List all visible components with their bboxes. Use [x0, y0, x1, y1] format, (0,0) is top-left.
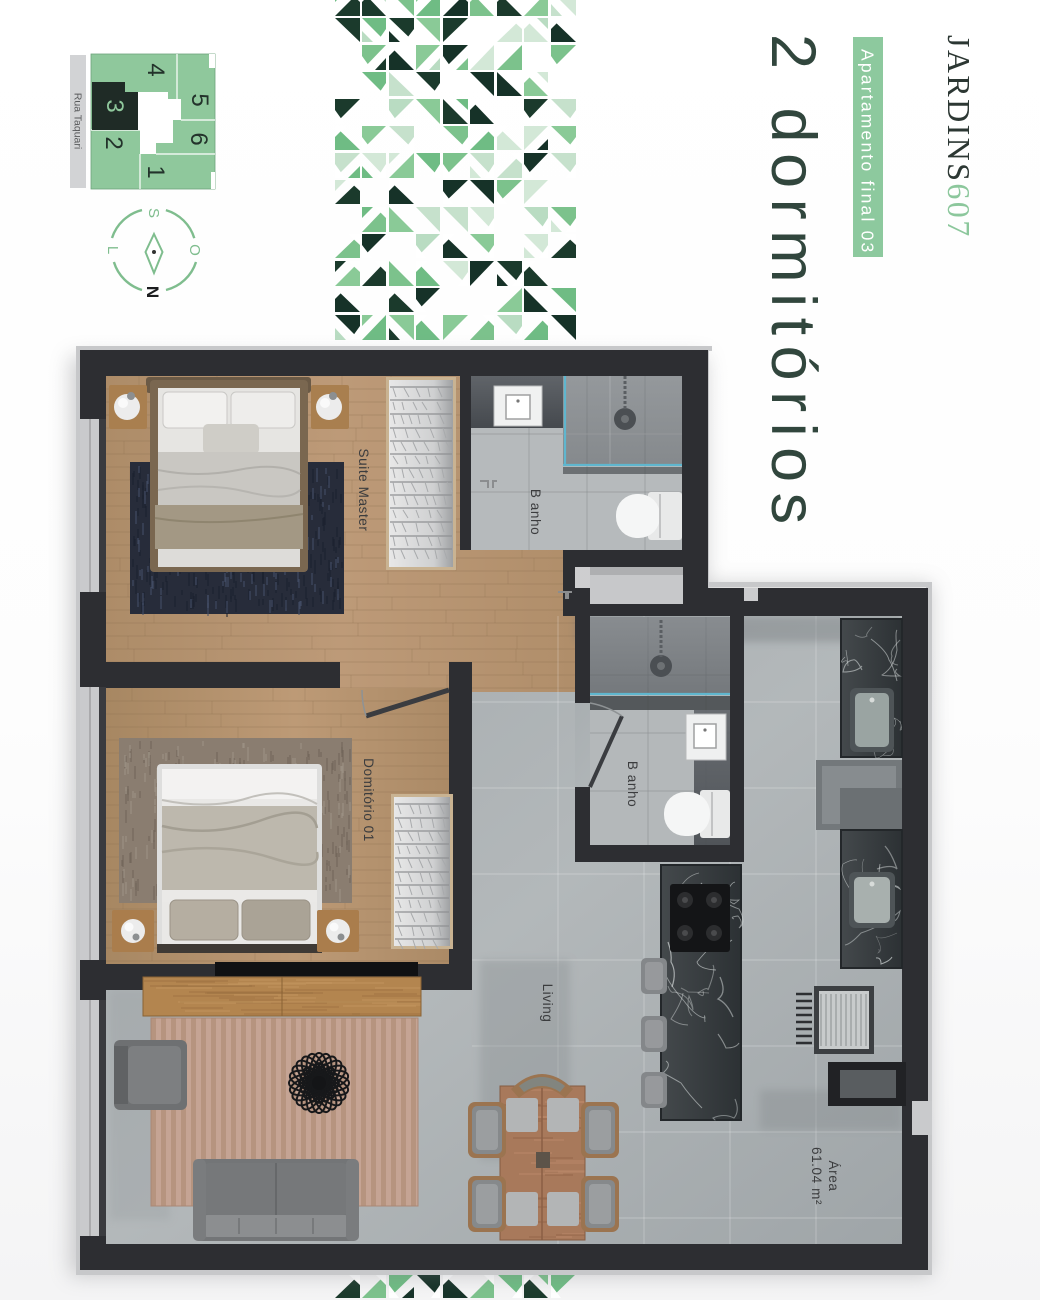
svg-text:N: N [143, 286, 162, 298]
svg-text:Área: Área [826, 1161, 841, 1192]
svg-text:Living: Living [540, 984, 555, 1023]
svg-text:2: 2 [100, 136, 127, 149]
svg-text:5: 5 [186, 93, 213, 106]
svg-text:3: 3 [101, 99, 128, 112]
svg-text:Domitório 01: Domitório 01 [361, 758, 376, 842]
svg-text:Suite Master: Suite Master [356, 449, 371, 532]
svg-text:2 dormitórios: 2 dormitórios [758, 34, 828, 535]
svg-text:JARDINS607: JARDINS607 [941, 35, 977, 239]
svg-text:Apartamento final 03: Apartamento final 03 [858, 49, 878, 255]
svg-text:B anho: B anho [528, 489, 543, 535]
svg-text:61.04 m²: 61.04 m² [809, 1147, 824, 1205]
svg-text:6: 6 [185, 132, 212, 145]
svg-text:O: O [186, 244, 203, 256]
svg-text:4: 4 [142, 63, 169, 76]
svg-text:Rua Taquari: Rua Taquari [72, 93, 84, 149]
svg-text:1: 1 [142, 165, 169, 178]
svg-text:L: L [104, 246, 121, 254]
svg-text:S: S [145, 208, 162, 218]
svg-text:B anho: B anho [625, 761, 640, 807]
